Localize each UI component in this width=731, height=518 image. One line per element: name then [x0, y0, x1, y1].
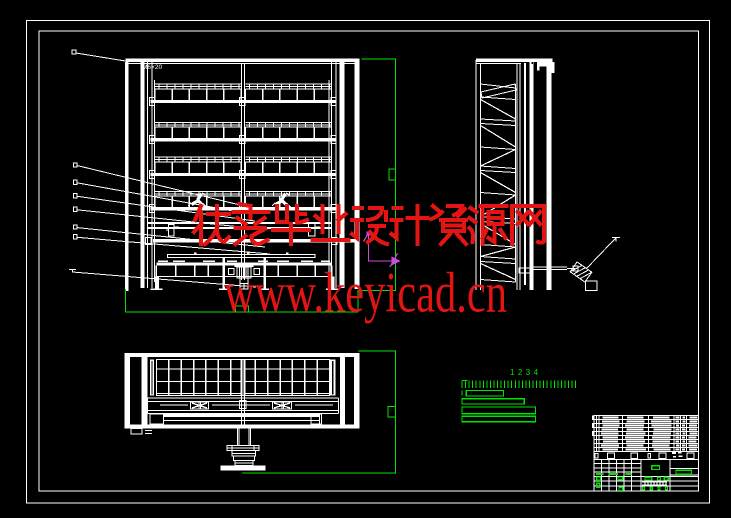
- svg-text:1 2 3 4: 1 2 3 4: [510, 368, 539, 377]
- svg-text:www.keyicad.cn: www.keyicad.cn: [224, 262, 507, 325]
